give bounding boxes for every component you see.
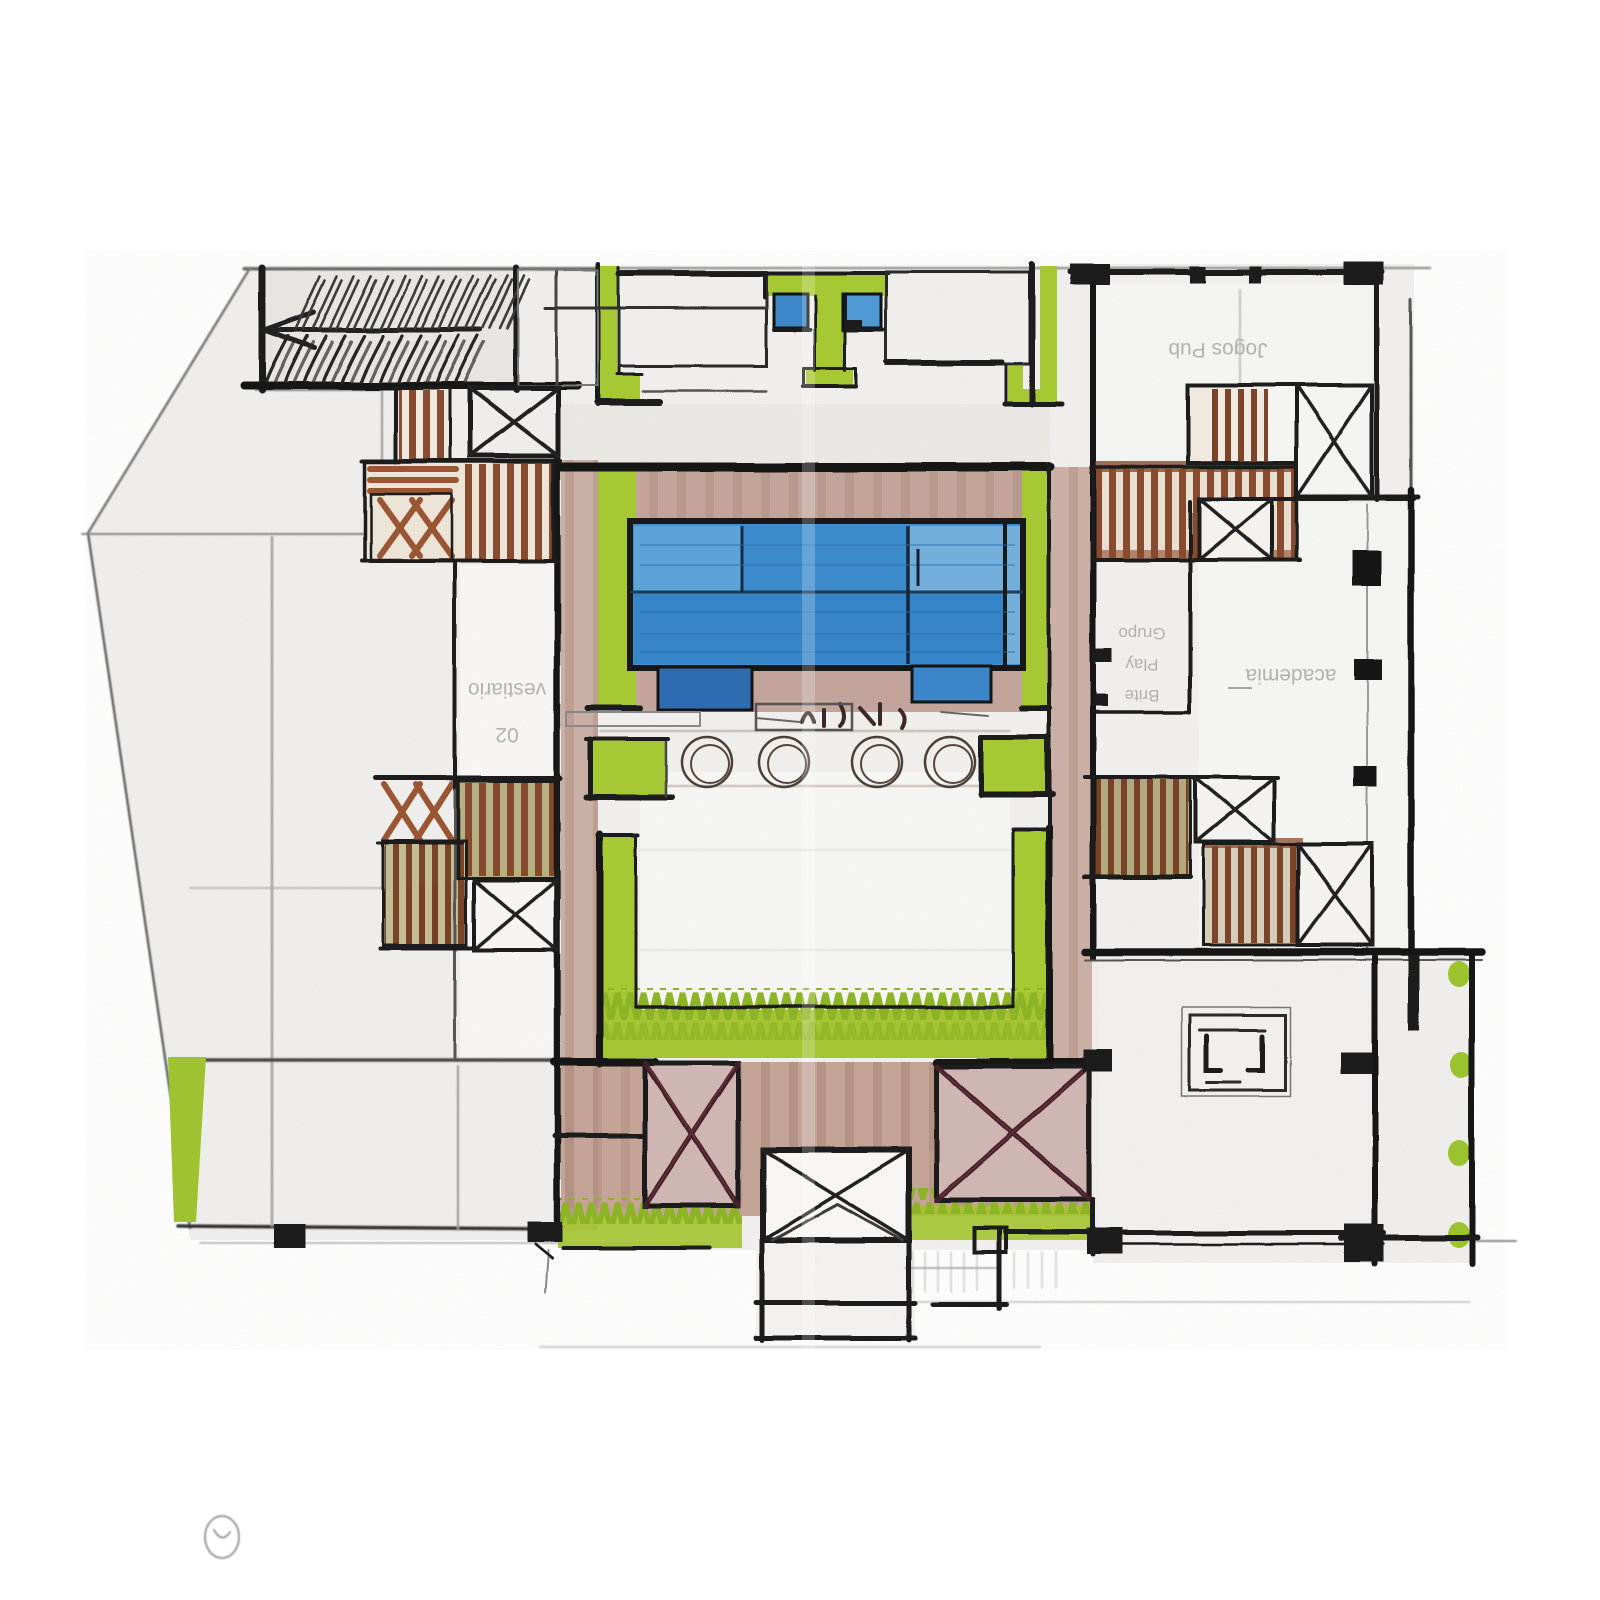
- svg-text:academia: academia: [1245, 664, 1336, 687]
- svg-text:Jogos Pub: Jogos Pub: [1168, 338, 1267, 361]
- svg-text:Grupo: Grupo: [1118, 624, 1165, 643]
- svg-text:02: 02: [495, 723, 518, 746]
- svg-text:Play: Play: [1125, 655, 1159, 674]
- svg-text:vestiario: vestiario: [468, 678, 546, 701]
- svg-text:Brite: Brite: [1125, 686, 1160, 705]
